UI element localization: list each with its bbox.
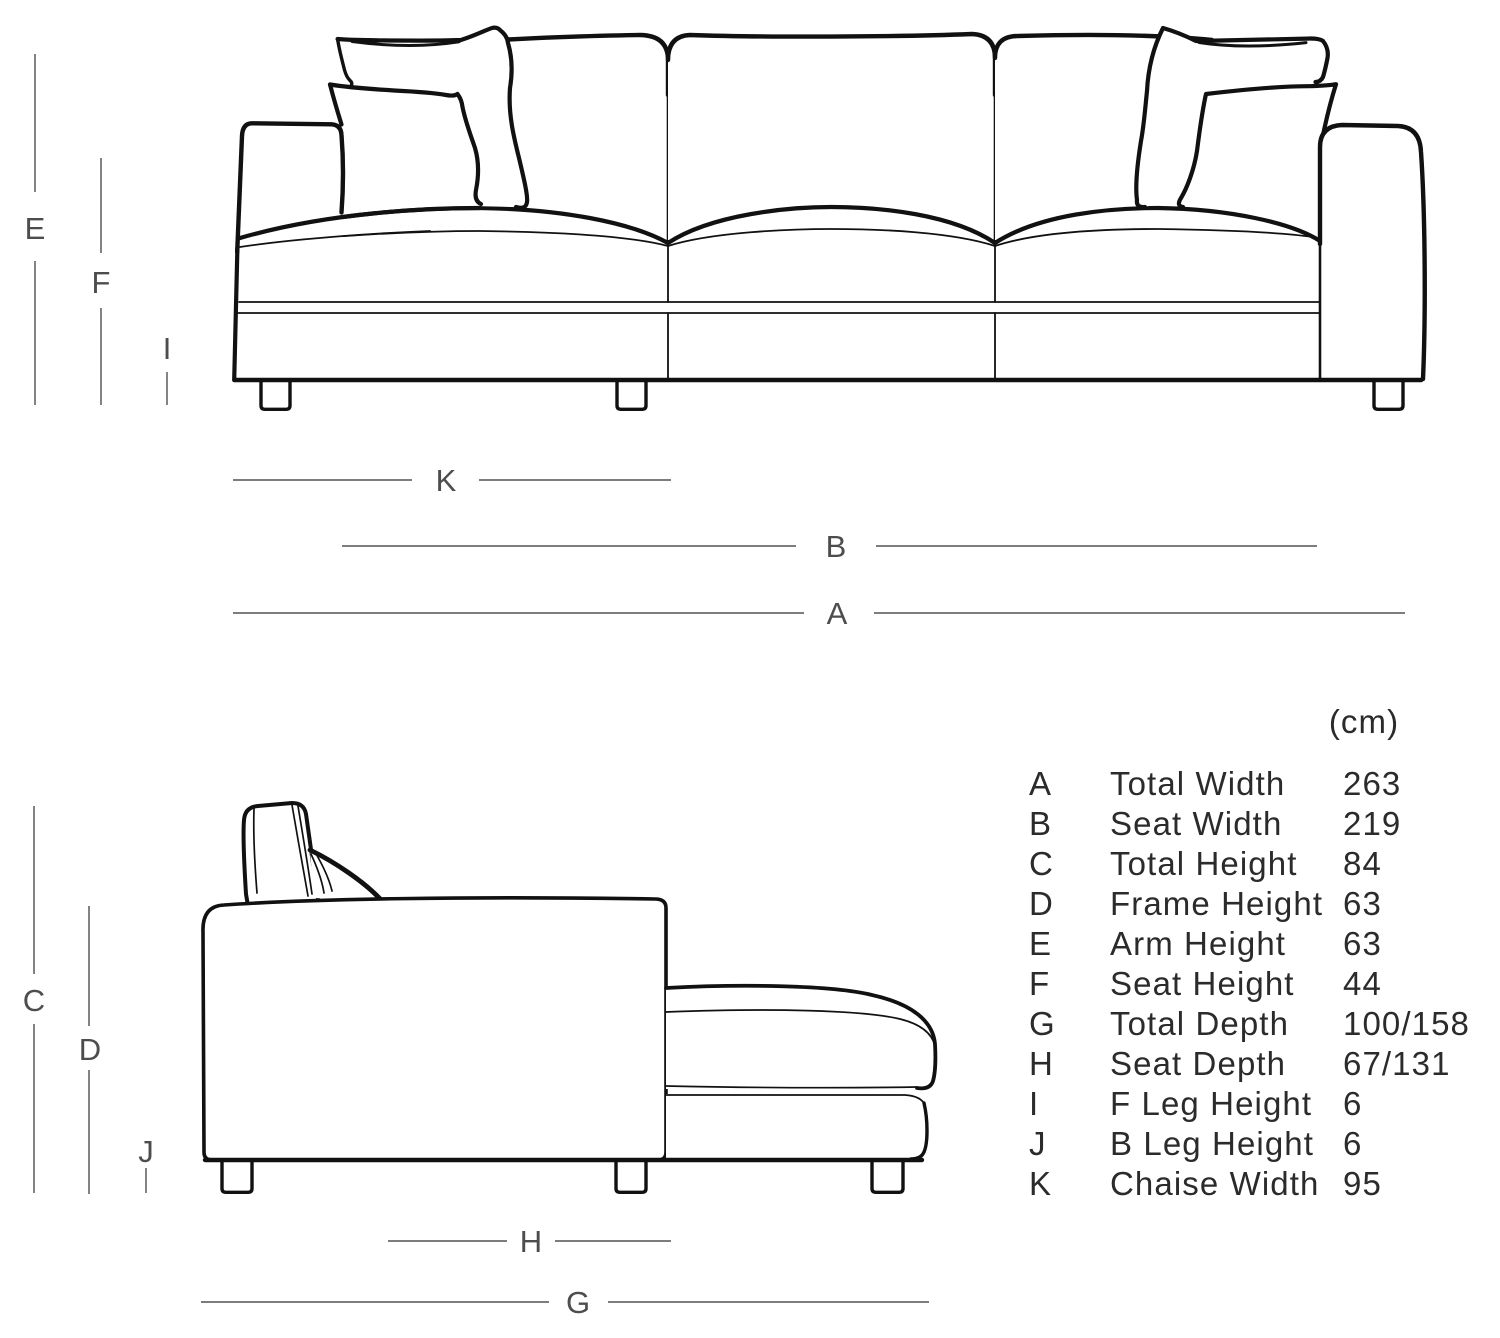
svg-text:F Leg Height: F Leg Height	[1110, 1085, 1312, 1122]
svg-text:Seat Height: Seat Height	[1110, 965, 1295, 1002]
svg-text:67/131: 67/131	[1343, 1045, 1451, 1082]
svg-text:G: G	[1029, 1005, 1056, 1042]
svg-text:Arm Height: Arm Height	[1110, 925, 1286, 962]
svg-text:E: E	[25, 211, 46, 246]
svg-text:B: B	[826, 529, 847, 564]
svg-text:63: 63	[1343, 925, 1382, 962]
svg-text:Total Height: Total Height	[1110, 845, 1297, 882]
svg-text:Seat Width: Seat Width	[1110, 805, 1282, 842]
svg-text:C: C	[1029, 845, 1054, 882]
svg-text:J: J	[138, 1134, 154, 1169]
svg-text:Total Depth: Total Depth	[1110, 1005, 1289, 1042]
svg-text:K: K	[1029, 1165, 1052, 1202]
svg-text:D: D	[1029, 885, 1054, 922]
svg-text:G: G	[566, 1285, 590, 1320]
svg-text:J: J	[1029, 1125, 1047, 1162]
svg-text:263: 263	[1343, 765, 1401, 802]
svg-text:100/158: 100/158	[1343, 1005, 1470, 1042]
svg-text:E: E	[1029, 925, 1052, 962]
svg-text:44: 44	[1343, 965, 1382, 1002]
svg-text:95: 95	[1343, 1165, 1382, 1202]
svg-text:H: H	[1029, 1045, 1054, 1082]
svg-text:I: I	[1029, 1085, 1039, 1122]
svg-text:F: F	[92, 265, 111, 300]
svg-text:84: 84	[1343, 845, 1382, 882]
svg-text:Seat Depth: Seat Depth	[1110, 1045, 1286, 1082]
svg-text:6: 6	[1343, 1125, 1362, 1162]
svg-text:A: A	[1029, 765, 1052, 802]
svg-text:B: B	[1029, 805, 1052, 842]
svg-text:Frame Height: Frame Height	[1110, 885, 1323, 922]
svg-text:I: I	[163, 331, 172, 366]
svg-text:Chaise Width: Chaise Width	[1110, 1165, 1319, 1202]
svg-text:219: 219	[1343, 805, 1401, 842]
svg-text:(cm): (cm)	[1329, 703, 1399, 740]
svg-text:6: 6	[1343, 1085, 1362, 1122]
svg-text:A: A	[827, 596, 848, 631]
svg-text:C: C	[23, 983, 45, 1018]
svg-text:D: D	[79, 1032, 101, 1067]
svg-text:F: F	[1029, 965, 1050, 1002]
svg-text:B Leg Height: B Leg Height	[1110, 1125, 1314, 1162]
svg-text:H: H	[520, 1224, 542, 1259]
svg-text:63: 63	[1343, 885, 1382, 922]
svg-text:Total Width: Total Width	[1110, 765, 1285, 802]
svg-text:K: K	[436, 463, 457, 498]
